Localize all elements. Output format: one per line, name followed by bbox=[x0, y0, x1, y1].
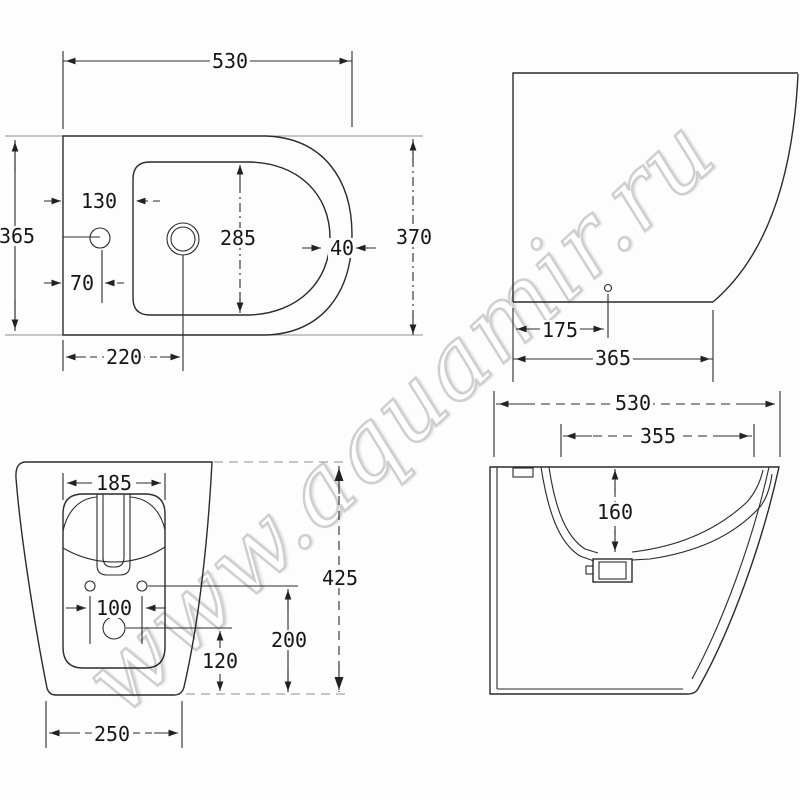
plan-view bbox=[5, 51, 423, 371]
overflow-slot-inner bbox=[103, 494, 124, 567]
rear-opening-outline bbox=[63, 494, 165, 668]
bowl-wall-right-outer bbox=[632, 474, 772, 560]
drain-trap-flange bbox=[586, 566, 593, 574]
dim-label-plan-370: 370 bbox=[394, 227, 434, 247]
rear-view bbox=[16, 462, 346, 748]
drain-trap-inner bbox=[599, 562, 626, 579]
rear-bowl-lower-curve bbox=[63, 547, 165, 562]
bowl-wall-right-inner bbox=[632, 470, 763, 552]
drawing-canvas bbox=[0, 0, 800, 800]
dim-label-rear-250: 250 bbox=[92, 724, 132, 744]
dim-label-rear-185: 185 bbox=[94, 473, 134, 493]
dim-label-rear-425: 425 bbox=[320, 568, 360, 588]
section-view bbox=[490, 391, 780, 694]
dim-label-plan-70: 70 bbox=[68, 273, 96, 293]
dim-label-plan-365: 365 bbox=[0, 226, 37, 246]
dim-label-side-175: 175 bbox=[540, 320, 580, 340]
dim-label-rear-200: 200 bbox=[269, 630, 309, 650]
tap-hole bbox=[90, 228, 110, 248]
section-front-wall-inner bbox=[692, 467, 769, 679]
technical-drawing: www.aquamir.ru bbox=[0, 0, 800, 800]
rear-outer-outline bbox=[16, 462, 212, 695]
dim-label-side-365: 365 bbox=[593, 348, 633, 368]
rear-bowl-arch-left bbox=[63, 497, 97, 531]
fixing-hole-left bbox=[85, 581, 95, 591]
dim-label-section-530: 530 bbox=[613, 393, 653, 413]
dim-label-plan-285: 285 bbox=[218, 228, 258, 248]
side-drain-hole bbox=[605, 285, 612, 292]
rear-drain-hole bbox=[103, 617, 125, 639]
plan-outer-outline bbox=[63, 136, 352, 335]
dim-label-plan-130: 130 bbox=[79, 191, 119, 211]
overflow-slot-outer bbox=[97, 494, 130, 575]
drain-hole-inner bbox=[171, 227, 195, 251]
side-front-curve bbox=[713, 74, 798, 302]
dim-label-section-160: 160 bbox=[595, 502, 635, 522]
dim-label-plan-40: 40 bbox=[328, 238, 356, 258]
fixing-hole-right bbox=[137, 581, 147, 591]
dim-label-section-355: 355 bbox=[638, 426, 678, 446]
rear-bowl-arch-right bbox=[130, 497, 165, 530]
bowl-wall-left-outer bbox=[541, 467, 594, 561]
bowl-wall-left-inner bbox=[549, 467, 598, 553]
side-back-and-top-edge bbox=[513, 73, 798, 302]
dim-label-rear-120: 120 bbox=[200, 651, 240, 671]
dim-label-rear-100: 100 bbox=[94, 598, 134, 618]
dim-label-plan-530: 530 bbox=[210, 51, 250, 71]
drain-hole-outer bbox=[167, 223, 199, 255]
section-fixing-hole bbox=[513, 468, 533, 477]
dim-label-plan-220: 220 bbox=[104, 347, 144, 367]
